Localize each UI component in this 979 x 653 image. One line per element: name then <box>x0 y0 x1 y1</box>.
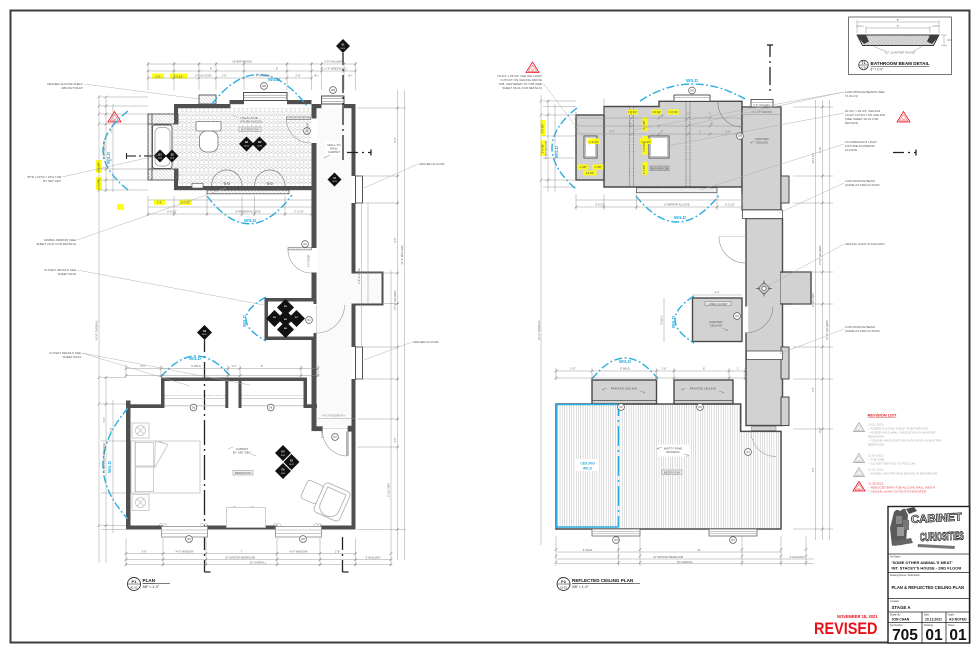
svg-text:WILD: WILD <box>583 467 593 471</box>
svg-text:INT. STACEY'S HOUSE - 2ND FLOO: INT. STACEY'S HOUSE - 2ND FLOOR <box>892 566 962 571</box>
svg-text:2'-6": 2'-6" <box>157 201 162 205</box>
svg-text:1'-8 3/4": 1'-8 3/4" <box>589 140 599 144</box>
svg-text:8' MIRROR ALCOVE: 8' MIRROR ALCOVE <box>235 210 260 214</box>
svg-text:– CLOSET DETAILS TO FOLLOW: – CLOSET DETAILS TO FOLLOW <box>868 462 915 466</box>
svg-text:02-01: 02-01 <box>341 48 346 50</box>
svg-text:3'-6": 3'-6" <box>141 549 146 553</box>
svg-text:27'-4" HALLWAY: 27'-4" HALLWAY <box>393 290 397 310</box>
svg-text:2'-6": 2'-6" <box>295 74 300 78</box>
svg-text:9'-2": 9'-2" <box>394 437 397 442</box>
svg-text:Scale: Scale <box>948 614 955 617</box>
svg-text:-1 5/8": -1 5/8" <box>579 165 587 169</box>
svg-text:4'-10": 4'-10" <box>819 147 822 153</box>
svg-text:2'-6 5/8": 2'-6 5/8" <box>97 162 101 172</box>
svg-text:5'-3 1/2": 5'-3 1/2" <box>181 201 191 205</box>
svg-text:02-01: 02-01 <box>281 455 285 457</box>
svg-text:8' BATHROOM: 8' BATHROOM <box>544 140 548 159</box>
svg-text:Set Name: Set Name <box>890 556 901 559</box>
svg-text:BATHROOM BEAM DETAIL: BATHROOM BEAM DETAIL <box>871 61 930 66</box>
svg-text:CARPET: CARPET <box>328 150 341 154</box>
svg-text:16': 16' <box>697 548 701 552</box>
svg-text:+1/2"+: +1/2"+ <box>856 24 865 28</box>
svg-text:REVISED: REVISED <box>814 620 878 638</box>
svg-text:2'-1 3/8": 2'-1 3/8" <box>642 165 646 175</box>
svg-text:1'-8 3/4": 1'-8 3/4" <box>642 142 646 152</box>
svg-text:2' HALLWAY: 2' HALLWAY <box>812 293 815 307</box>
svg-text:CEILING: CEILING <box>710 324 723 328</box>
svg-text:3' HALLWAY: 3' HALLWAY <box>365 555 380 559</box>
svg-text:2'-6": 2'-6" <box>335 549 340 553</box>
svg-text:9": 9" <box>897 24 900 28</box>
svg-text:-1 5/8": -1 5/8" <box>594 165 602 169</box>
svg-text:6' WILD: 6' WILD <box>583 548 593 552</box>
svg-text:T1: T1 <box>862 61 866 65</box>
svg-text:31'-4" WALL(W): 31'-4" WALL(W) <box>400 245 404 264</box>
svg-text:4'-6": 4'-6" <box>714 291 719 295</box>
svg-text:1'-8 3/4": 1'-8 3/4" <box>669 110 679 114</box>
svg-text:1'-8 3/4": 1'-8 3/4" <box>652 110 662 114</box>
svg-text:01-03: 01-03 <box>332 181 336 183</box>
svg-text:NOVEMBER 18, 2021: NOVEMBER 18, 2021 <box>837 614 878 619</box>
svg-text:1'-8" ALCOVE: 1'-8" ALCOVE <box>195 74 212 78</box>
svg-text:SHEET 09-01: SHEET 09-01 <box>63 355 82 359</box>
svg-text:2'-6": 2'-6" <box>725 130 730 134</box>
svg-text:41'-4" OVERALL: 41'-4" OVERALL <box>95 320 99 340</box>
svg-text:SHEET 06-01 FOR DETAILS): SHEET 06-01 FOR DETAILS) <box>502 86 542 90</box>
svg-text:PAINTED CEILING: PAINTED CEILING <box>611 387 638 391</box>
svg-text:WILD: WILD <box>242 314 248 327</box>
svg-text:REVISION LIST: REVISION LIST <box>868 413 897 418</box>
svg-text:2'-7": 2'-7" <box>609 130 614 134</box>
svg-text:5'-6": 5'-6" <box>110 427 113 432</box>
svg-text:B2: B2 <box>258 140 262 144</box>
svg-text:1'-6": 1'-6" <box>231 364 236 368</box>
svg-text:WILD: WILD <box>671 315 677 328</box>
svg-text:02-01: 02-01 <box>170 157 174 159</box>
svg-text:WILD: WILD <box>189 356 202 362</box>
svg-text:BATHROOM: BATHROOM <box>241 127 259 131</box>
svg-text:WILD: WILD <box>686 78 699 84</box>
svg-text:01: 01 <box>949 627 967 644</box>
svg-text:– ADDED LOW PROFILE BEAMS: – ADDED LOW PROFILE BEAMS IN BATHROOM <box>868 472 938 476</box>
svg-text:26' OVERALL: 26' OVERALL <box>250 561 267 565</box>
svg-text:2'-6" DOOR: 2'-6" DOOR <box>309 255 311 267</box>
svg-text:3' HALLWAY: 3' HALLWAY <box>789 555 804 559</box>
svg-text:BEDROOM: BEDROOM <box>235 471 251 475</box>
svg-text:22' MASTER BEDROOM: 22' MASTER BEDROOM <box>225 555 256 559</box>
svg-text:ALCOVE: ALCOVE <box>845 148 857 152</box>
svg-text:CEILING LIGHT IN HALLWAY: CEILING LIGHT IN HALLWAY <box>845 242 885 246</box>
svg-text:1'-6": 1'-6" <box>661 367 666 371</box>
svg-text:B1: B1 <box>245 140 249 144</box>
svg-text:Date: Date <box>924 614 930 617</box>
svg-text:CEILING: CEILING <box>756 141 769 145</box>
svg-text:SHEET 24-01 FOR DETAILS): SHEET 24-01 FOR DETAILS) <box>36 242 76 246</box>
svg-text:02-01: 02-01 <box>158 157 162 159</box>
svg-text:8' WILD: 8' WILD <box>661 315 664 324</box>
svg-text:02-01: 02-01 <box>257 146 262 148</box>
svg-text:BY SET DEC: BY SET DEC <box>43 179 62 183</box>
svg-text:JON CHAN: JON CHAN <box>892 618 910 622</box>
svg-text:4' WINDOW: 4' WINDOW <box>256 74 271 78</box>
svg-text:LINEN CLOSET: LINEN CLOSET <box>709 302 728 306</box>
svg-text:BOARDS: BOARDS <box>666 450 679 454</box>
svg-text:BATHROOM: BATHROOM <box>651 167 669 171</box>
svg-text:3/8" = 1'-0": 3/8" = 1'-0" <box>143 585 160 589</box>
svg-text:ARCHED ALCOVE: ARCHED ALCOVE <box>413 340 439 344</box>
svg-text:+1/2"+: +1/2"+ <box>932 24 941 28</box>
svg-text:02-01: 02-01 <box>244 146 249 148</box>
svg-text:T1 01-01): T1 01-01) <box>845 94 858 98</box>
svg-text:2' HALLWAY: 2' HALLWAY <box>388 483 391 497</box>
svg-text:STAGE A: STAGE A <box>892 605 912 610</box>
svg-text:02-01: 02-01 <box>289 464 293 466</box>
svg-text:BY SET DEC: BY SET DEC <box>233 451 252 455</box>
svg-text:Drawn By: Drawn By <box>890 614 901 617</box>
svg-text:2'-6" DOOR: 2'-6" DOOR <box>322 426 324 438</box>
svg-text:8'-9": 8'-9" <box>394 237 397 242</box>
svg-text:3/4": 3/4" <box>947 38 952 42</box>
svg-text:705: 705 <box>892 627 918 644</box>
svg-text:5'-8 1/2": 5'-8 1/2" <box>595 203 605 207</box>
svg-text:2'-6": 2'-6" <box>103 417 106 422</box>
svg-text:(TO BE CNC'D): (TO BE CNC'D) <box>240 119 262 123</box>
svg-text:WILD: WILD <box>244 218 257 224</box>
svg-text:BEDROOM: BEDROOM <box>868 443 884 447</box>
svg-text:13 3/4": 13 3/4" <box>586 171 594 175</box>
svg-text:27'-8" HALLWAY: 27'-8" HALLWAY <box>818 245 822 265</box>
svg-text:SHEET 09-00: SHEET 09-00 <box>58 272 77 276</box>
svg-text:CURIOSITIES: CURIOSITIES <box>920 530 965 544</box>
svg-text:WILD: WILD <box>619 359 632 365</box>
svg-text:8' WILD: 8' WILD <box>620 367 630 371</box>
svg-text:2'-3 1/2": 2'-3 1/2" <box>725 203 735 207</box>
svg-text:4'-9": 4'-9" <box>812 387 815 392</box>
svg-text:Location: Location <box>890 600 900 603</box>
svg-text:PLAN: PLAN <box>143 578 156 583</box>
svg-text:10.12.2021: 10.12.2021 <box>925 618 942 622</box>
svg-text:8' MIRROR ALCOVE: 8' MIRROR ALCOVE <box>664 203 689 207</box>
svg-text:P2: P2 <box>561 579 567 584</box>
svg-text:Drawing Name / Description: Drawing Name / Description <box>890 574 920 577</box>
svg-text:01-03: 01-03 <box>131 586 138 590</box>
svg-text:4'-6" WINDOW: 4'-6" WINDOW <box>290 549 308 553</box>
svg-text:PLAN & REFLECTED CEILING PLAN: PLAN & REFLECTED CEILING PLAN <box>892 585 965 590</box>
svg-text:41'-4" OVERALL: 41'-4" OVERALL <box>537 320 541 340</box>
svg-text:26 OVERALL: 26 OVERALL <box>677 560 694 564</box>
svg-text:+6"+ 2'-6" WINDOW: +6"+ 2'-6" WINDOW <box>751 112 773 114</box>
svg-text:P1: P1 <box>132 579 138 584</box>
svg-text:02-01: 02-01 <box>281 473 285 475</box>
svg-text:01-03: 01-03 <box>860 67 867 70</box>
svg-text:6' WILD: 6' WILD <box>191 364 201 368</box>
svg-text:WILD: WILD <box>107 460 113 473</box>
svg-text:DETAILS): DETAILS) <box>845 121 858 125</box>
svg-text:+6"+: +6"+ <box>348 75 354 78</box>
svg-text:4'-6" WINDOW: 4'-6" WINDOW <box>176 549 194 553</box>
svg-text:2'-3 1/2": 2'-3 1/2" <box>294 210 304 214</box>
svg-text:CEILING: CEILING <box>580 462 595 466</box>
svg-text:1/2" QUARTER ROUND: 1/2" QUARTER ROUND <box>885 51 915 55</box>
svg-text:2'-6": 2'-6" <box>570 367 575 371</box>
svg-text:2'-6" DOOR: 2'-6" DOOR <box>308 123 310 135</box>
svg-text:6'-8 1/2": 6'-8 1/2" <box>167 210 177 214</box>
svg-text:8": 8" <box>897 18 900 22</box>
svg-text:8'-3": 8'-3" <box>394 137 397 142</box>
svg-text:PAINTED CEILING: PAINTED CEILING <box>690 387 717 391</box>
svg-text:16': 16' <box>660 114 664 118</box>
svg-text:ABOVE TOILET: ABOVE TOILET <box>61 86 83 90</box>
svg-text:8' BATHROOM: 8' BATHROOM <box>102 140 106 159</box>
svg-text:ARCHED ALCOVE: ARCHED ALCOVE <box>419 162 445 166</box>
svg-text:16' BATHROOM: 16' BATHROOM <box>232 60 252 64</box>
svg-text:02-01: 02-01 <box>202 334 207 336</box>
svg-text:BEDROOM: BEDROOM <box>664 471 680 475</box>
svg-text:'SOME OTHER ANIMAL'S MEAT': 'SOME OTHER ANIMAL'S MEAT' <box>892 560 953 565</box>
svg-text:– CEILING LIGHT CUTOUTS IN: – CEILING LIGHT CUTOUTS INDICATED <box>868 490 927 494</box>
svg-text:AS NOTED: AS NOTED <box>949 618 967 622</box>
svg-text:1'-8 3/4": 1'-8 3/4" <box>628 110 638 114</box>
svg-text:+10"+: +10"+ <box>110 126 113 133</box>
svg-text:3'-9": 3'-9" <box>812 467 815 472</box>
svg-text:6" = 1'-0": 6" = 1'-0" <box>871 68 884 72</box>
svg-text:22' MASTER BEDROOM: 22' MASTER BEDROOM <box>653 555 684 559</box>
svg-text:11' MASTER BEDROOM: 11' MASTER BEDROOM <box>102 442 106 473</box>
svg-text:1'-6": 1'-6" <box>221 74 226 78</box>
svg-text:+6"+: +6"+ <box>314 75 320 78</box>
svg-text:3/8" = 1'-0": 3/8" = 1'-0" <box>572 585 589 589</box>
svg-text:2'-8" HALLWAY: 2'-8" HALLWAY <box>324 60 343 64</box>
svg-text:2'-6" ALCOVE: 2'-6" ALCOVE <box>358 268 361 284</box>
svg-text:REFLECTED CEILING PLAN: REFLECTED CEILING PLAN <box>572 578 634 583</box>
svg-text:01: 01 <box>925 627 943 644</box>
svg-text:WILD: WILD <box>674 215 687 221</box>
svg-text:01-03: 01-03 <box>560 586 567 590</box>
svg-text:(SAME AS MAIN FLOOR): (SAME AS MAIN FLOOR) <box>845 183 880 187</box>
svg-text:-6": -6" <box>110 158 113 161</box>
svg-text:+6"+ 2'-6" DOOR +6"+: +6"+ 2'-6" DOOR +6"+ <box>322 416 346 418</box>
svg-text:(SAME AS MAIN FLOOR): (SAME AS MAIN FLOOR) <box>845 329 880 333</box>
svg-text:31'-4" HALLWAY: 31'-4" HALLWAY <box>825 320 829 340</box>
svg-text:+6"+ 2'-8" WINDOW +6"+: +6"+ 2'-8" WINDOW +6"+ <box>320 68 348 71</box>
